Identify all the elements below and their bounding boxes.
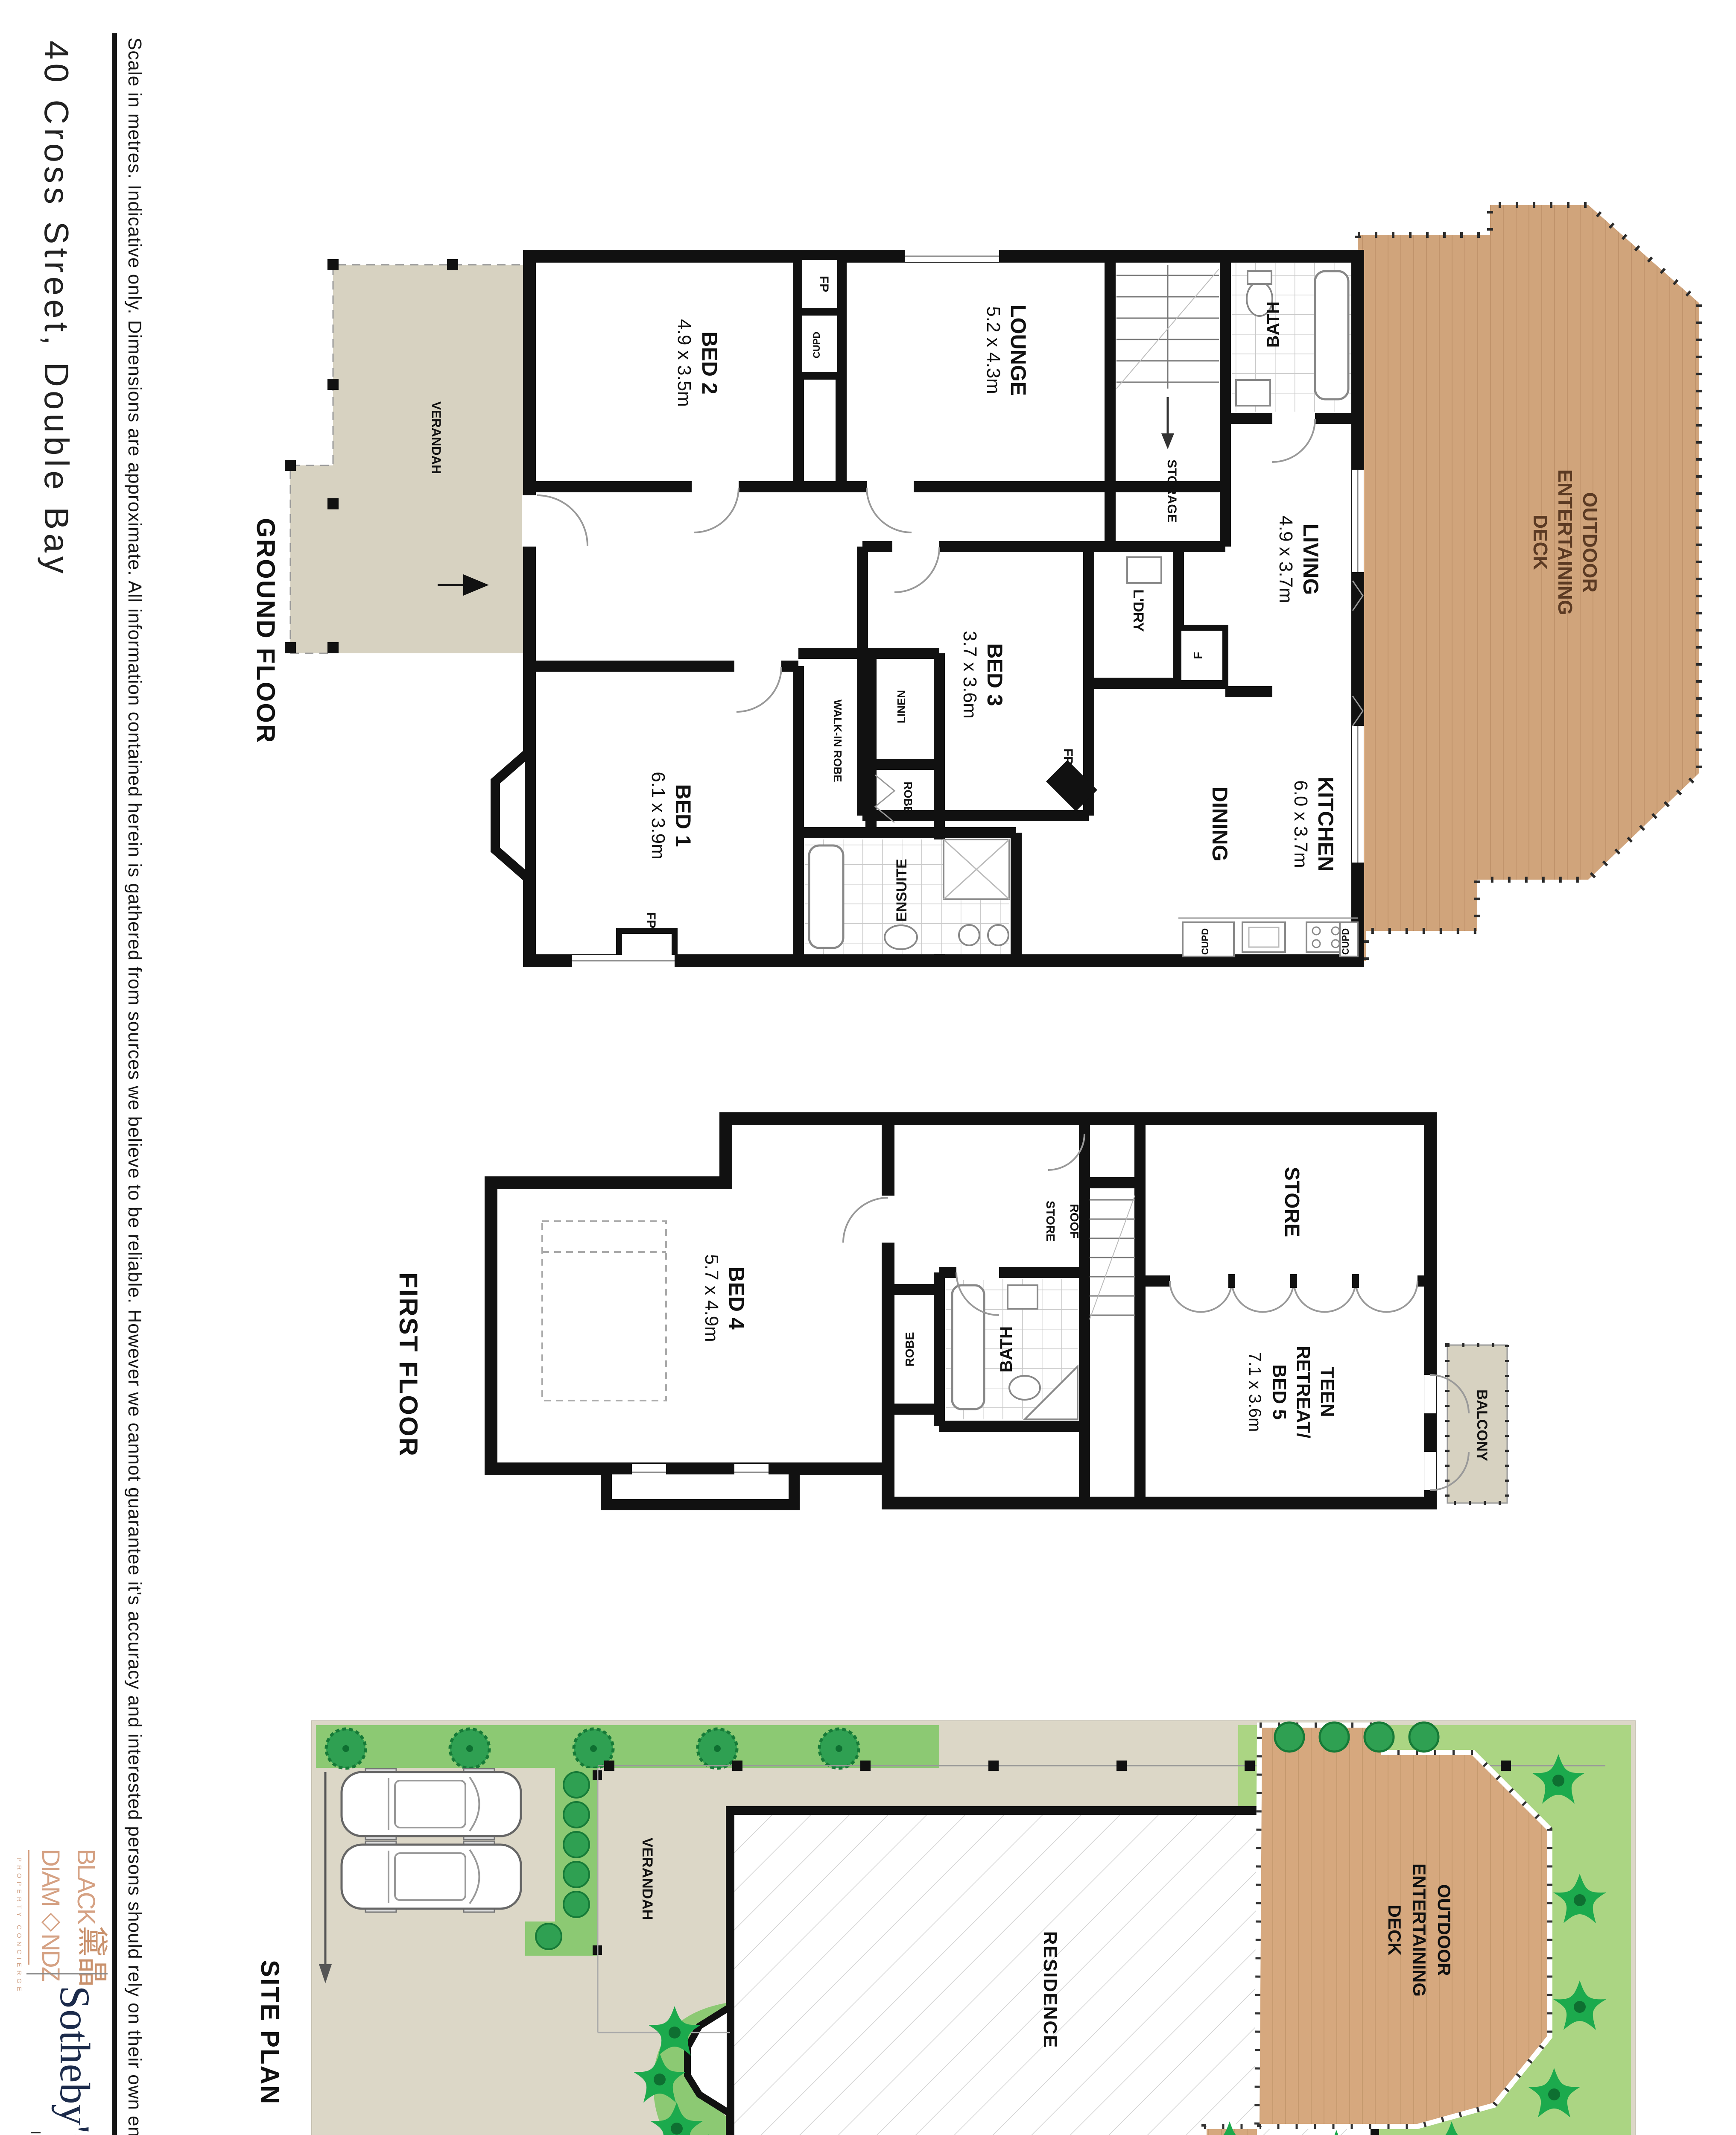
ff-teen-l1: TEEN <box>1317 1367 1338 1417</box>
gf-bed3-dims: 3.7 x 3.6m <box>959 631 980 718</box>
page-title: 40 Cross Street, Double Bay <box>37 41 76 577</box>
black-diamondz-cjk: 黛晶 <box>73 1926 117 1987</box>
gf-cupd-label: CUPD <box>811 332 822 358</box>
gf-bay-window <box>495 752 529 880</box>
site-deck-label-1: OUTDOOR <box>1434 1884 1454 1976</box>
ff-store-label: STORE <box>1280 1167 1303 1237</box>
basin-icon <box>1008 1285 1038 1309</box>
gf-storage-label: STORAGE <box>1165 459 1179 523</box>
black-diamondz-logo-line2: DIAM◇NDZ <box>36 1849 65 1980</box>
ff-bed4-name: BED 4 <box>725 1266 748 1329</box>
gf-fp-label: FP <box>817 276 831 292</box>
gf-bed1-dims: 6.1 x 3.9m <box>648 772 669 859</box>
gf-cupd-label: CUPD <box>1200 928 1210 955</box>
site-plan: RESIDENCE VERANDAH OUTDOOR ENTERTAINING … <box>299 1708 1708 2135</box>
gf-linen-label: LINEN <box>895 690 908 723</box>
toilet-icon <box>1009 1376 1040 1400</box>
bathtub-icon <box>809 845 843 948</box>
site-deck-label-2: ENTERTAINING <box>1409 1863 1429 1997</box>
ff-teen-l2: RETREAT/ <box>1293 1346 1314 1439</box>
gf-wir-label: WALK-IN ROBE <box>831 699 844 782</box>
gf-bed2-name: BED 2 <box>698 331 722 394</box>
ff-bed4-outline <box>491 1119 888 1469</box>
bathtub-icon <box>1315 271 1348 399</box>
basin-icon <box>988 925 1008 945</box>
first-floor-plan: BALCONY <box>453 1093 1546 1563</box>
gf-deck-label-3: DECK <box>1529 515 1552 570</box>
diamondz-underline <box>28 1850 29 1965</box>
bathtub-icon <box>952 1285 984 1409</box>
ff-teen-dims: 7.1 x 3.6m <box>1245 1352 1264 1432</box>
toilet-icon <box>885 925 917 949</box>
ff-roofstore-l2: STORE <box>1044 1201 1057 1242</box>
gf-fp-label: FP <box>1061 749 1075 765</box>
car-icon <box>342 1841 521 1912</box>
gf-deck: OUTDOOR ENTERTAINING DECK <box>1358 205 1699 961</box>
sothebys-logo: Sotheby's <box>50 1986 99 2135</box>
basin-icon <box>959 925 979 945</box>
ff-robe-label: ROBE <box>903 1332 916 1367</box>
logo-divider <box>26 1973 108 1974</box>
ground-floor-plan: VERANDAH OUTDOOR ENTERTAINING DECK <box>273 196 1725 1008</box>
gf-bed3-name: BED 3 <box>983 643 1007 706</box>
ff-bed4-dims: 5.7 x 4.9m <box>701 1254 722 1342</box>
gf-fridge-label: F <box>1191 652 1204 659</box>
disclaimer-text: Scale in metres. Indicative only. Dimens… <box>124 38 145 2135</box>
gf-deck-label-1: OUTDOOR <box>1579 492 1601 592</box>
gf-living-dims: 4.9 x 3.7m <box>1275 515 1296 603</box>
gf-ensuite: ENSUITE <box>805 839 1009 954</box>
gf-dining-label: DINING <box>1208 787 1232 862</box>
gf-lounge-dims: 5.2 x 4.3m <box>983 306 1004 394</box>
site-residence-label: RESIDENCE <box>1040 1931 1061 2049</box>
black-diamondz-logo-line1: BLACK <box>72 1849 100 1924</box>
gf-verandah-label: VERANDAH <box>429 401 443 474</box>
car-icon <box>342 1769 521 1840</box>
sothebys-sub-label: INTERNATIONAL REALTY <box>27 2131 44 2135</box>
site-deck-label-3: DECK <box>1385 1904 1405 1955</box>
basin-icon <box>1236 380 1270 406</box>
gf-cupd-label: CUPD <box>1340 928 1351 955</box>
ff-roofstore-l1: ROOF <box>1068 1204 1081 1239</box>
gf-ldry-label: L'DRY <box>1130 589 1146 632</box>
gf-bed1-name: BED 1 <box>671 784 695 847</box>
ff-bath-label: BATH <box>997 1326 1016 1372</box>
gf-bath: BATH <box>1232 263 1351 412</box>
site-plan-title: SITE PLAN <box>255 1960 285 2105</box>
gf-kitchen-name: KITCHEN <box>1314 777 1338 872</box>
ff-balcony-label: BALCONY <box>1474 1389 1490 1461</box>
laundry-sink-icon <box>1127 557 1161 583</box>
site-top-garden <box>316 1725 939 1768</box>
gf-deck-label-2: ENTERTAINING <box>1554 469 1576 615</box>
gf-lounge-name: LOUNGE <box>1006 304 1030 396</box>
divider-rule <box>112 33 117 2135</box>
gf-living-name: LIVING <box>1299 524 1323 595</box>
gf-bed2-dims: 4.9 x 3.5m <box>674 319 695 407</box>
black-diamondz-tagline: PROPERTY CONCIERGE <box>15 1857 23 1995</box>
ff-teen-l3: BED 5 <box>1269 1364 1290 1420</box>
gf-fp-label: FP <box>644 912 658 928</box>
first-floor-title: FIRST FLOOR <box>394 1272 423 1457</box>
gf-kitchen-dims: 6.0 x 3.7m <box>1290 780 1311 868</box>
floorplan-page: 40 Cross Street, Double Bay Scale in met… <box>0 0 1736 2135</box>
site-verandah-label: VERANDAH <box>639 1838 655 1920</box>
gf-robe-label: ROBE <box>902 781 915 813</box>
gf-bath-label: BATH <box>1264 301 1283 348</box>
gf-ensuite-label: ENSUITE <box>894 859 910 921</box>
